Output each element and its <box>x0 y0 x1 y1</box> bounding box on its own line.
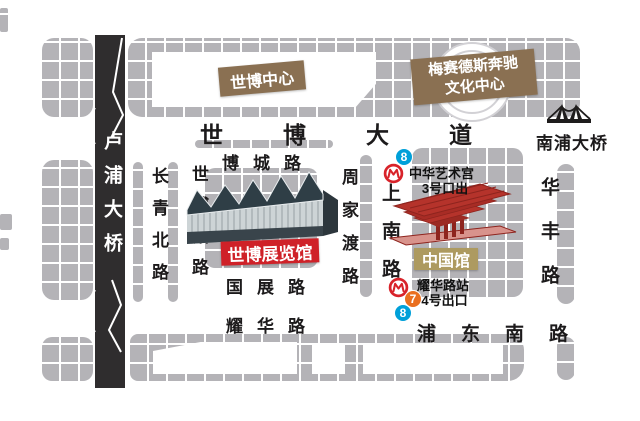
china-pavilion-label: 中国馆 <box>414 248 478 270</box>
art-museum-exit-note-line2: 3号口出 <box>409 178 481 197</box>
expo-exhibition-hall-image <box>183 170 341 248</box>
road-label-nanpu-bridge: 南浦大桥 <box>536 129 608 154</box>
city-block-strip <box>360 155 372 297</box>
building-footprint <box>363 343 503 374</box>
road-label-pudong-south: 浦东南路 <box>417 319 593 346</box>
mercedes-label-line2: 文化中心 <box>444 74 506 99</box>
city-block-fragment <box>0 8 8 32</box>
city-block-fragment <box>0 238 9 250</box>
metro-line8-badge: 8 <box>394 304 412 322</box>
city-block-fragment <box>0 214 12 230</box>
nanpu-bridge-icon <box>547 102 591 126</box>
road-label-lupu-bridge: 卢浦大桥 <box>98 131 125 267</box>
road-label-huafeng: 华丰路 <box>535 177 562 309</box>
road-label-expo-avenue: 世博大道 <box>200 116 532 150</box>
city-block-strip <box>133 162 143 302</box>
china-pavilion-label-text: 中国馆 <box>422 247 470 271</box>
shanghai-metro-logo <box>383 163 404 184</box>
expo-center-label-text: 世博中心 <box>229 64 295 93</box>
road-label-yaohua: 耀华路 <box>226 312 319 337</box>
expo-hall-label-text: 世博展览馆 <box>227 238 313 266</box>
building-footprint <box>312 343 345 374</box>
expo-area-map: 卢浦大桥 世博大道 博城路 国展路 耀华路 浦东南路 长青北路 世博馆路 周家渡… <box>0 0 640 421</box>
expo-exhibition-hall-label: 世博展览馆 <box>221 238 320 265</box>
yaohua-station-note-line2: 4号出口 <box>417 290 472 309</box>
road-label-guozhan: 国展路 <box>226 273 319 298</box>
road-label-changqing-north: 长青北路 <box>146 167 171 295</box>
